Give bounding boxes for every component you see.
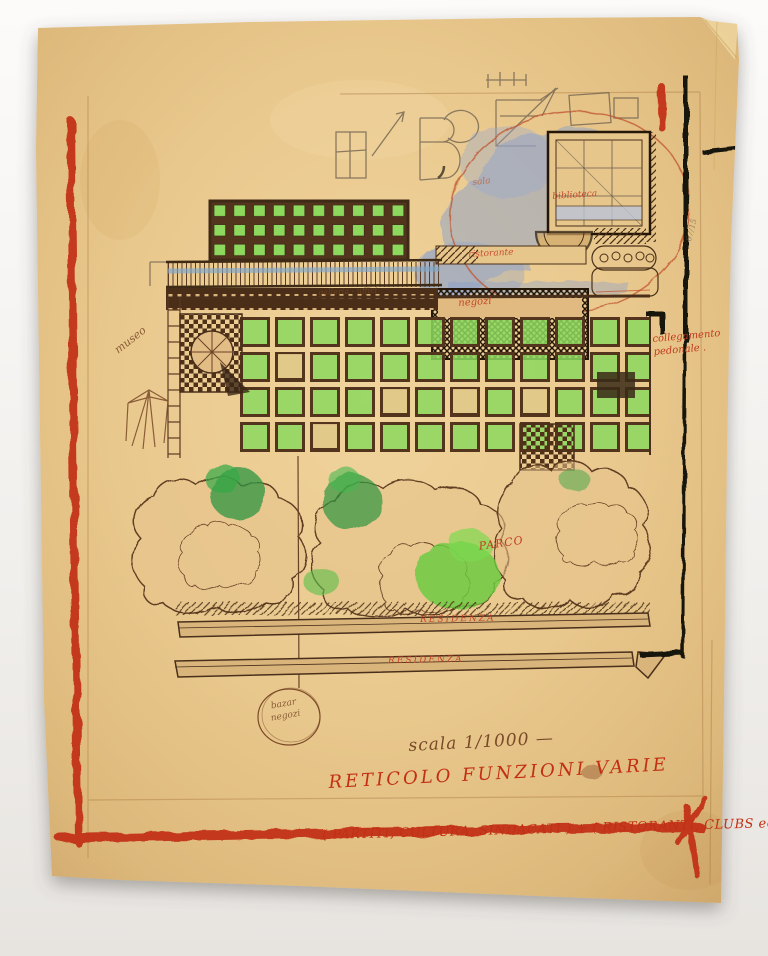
biblioteca-building xyxy=(548,132,656,242)
ristorante-band xyxy=(436,246,586,264)
galleria-band xyxy=(166,260,442,310)
plan-drawing xyxy=(0,0,768,956)
upper-grid-building xyxy=(210,201,408,260)
photographed-sketch-sheet: museo galleria - uffici sala biblioteca … xyxy=(0,0,768,956)
plaza-grid xyxy=(166,296,650,470)
checkerboard-court xyxy=(180,314,250,396)
